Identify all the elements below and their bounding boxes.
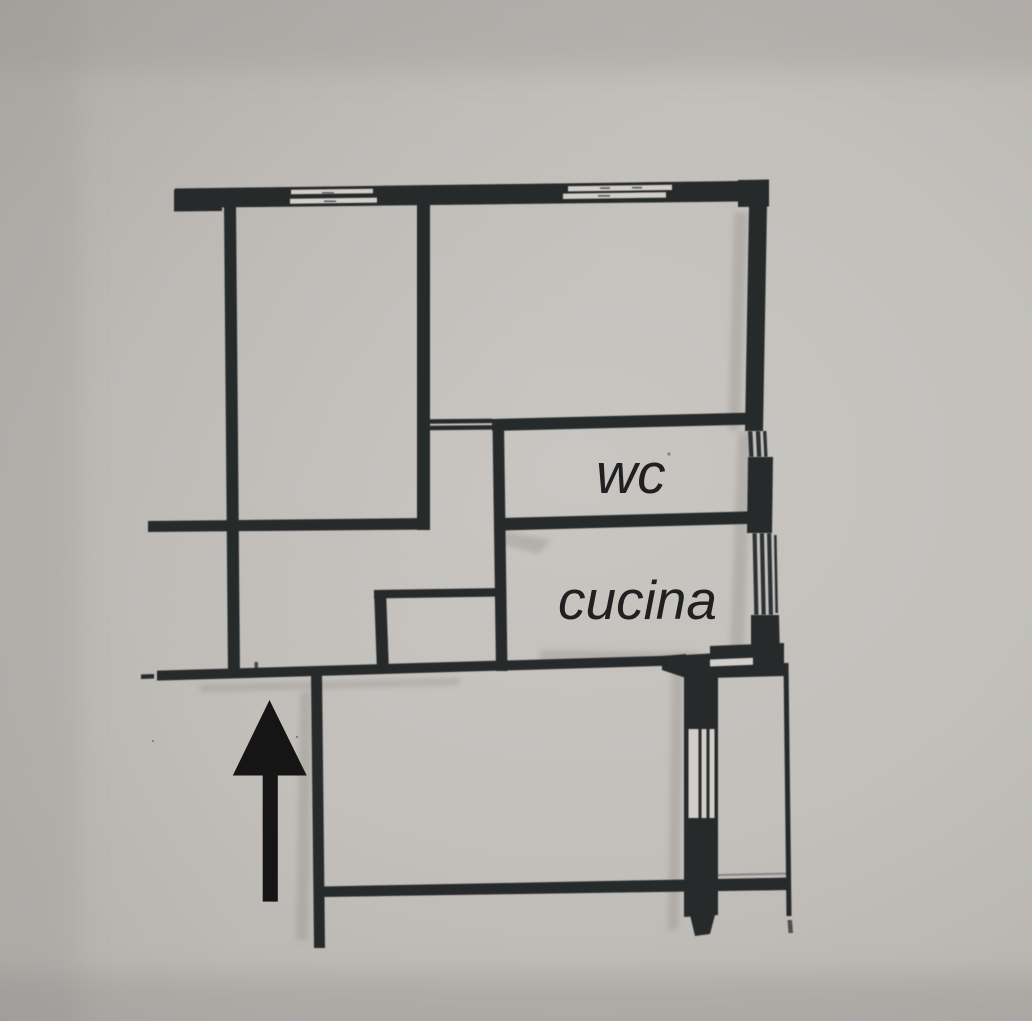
svg-text:cucina: cucina (558, 569, 717, 631)
svg-text:wc: wc (596, 442, 666, 506)
